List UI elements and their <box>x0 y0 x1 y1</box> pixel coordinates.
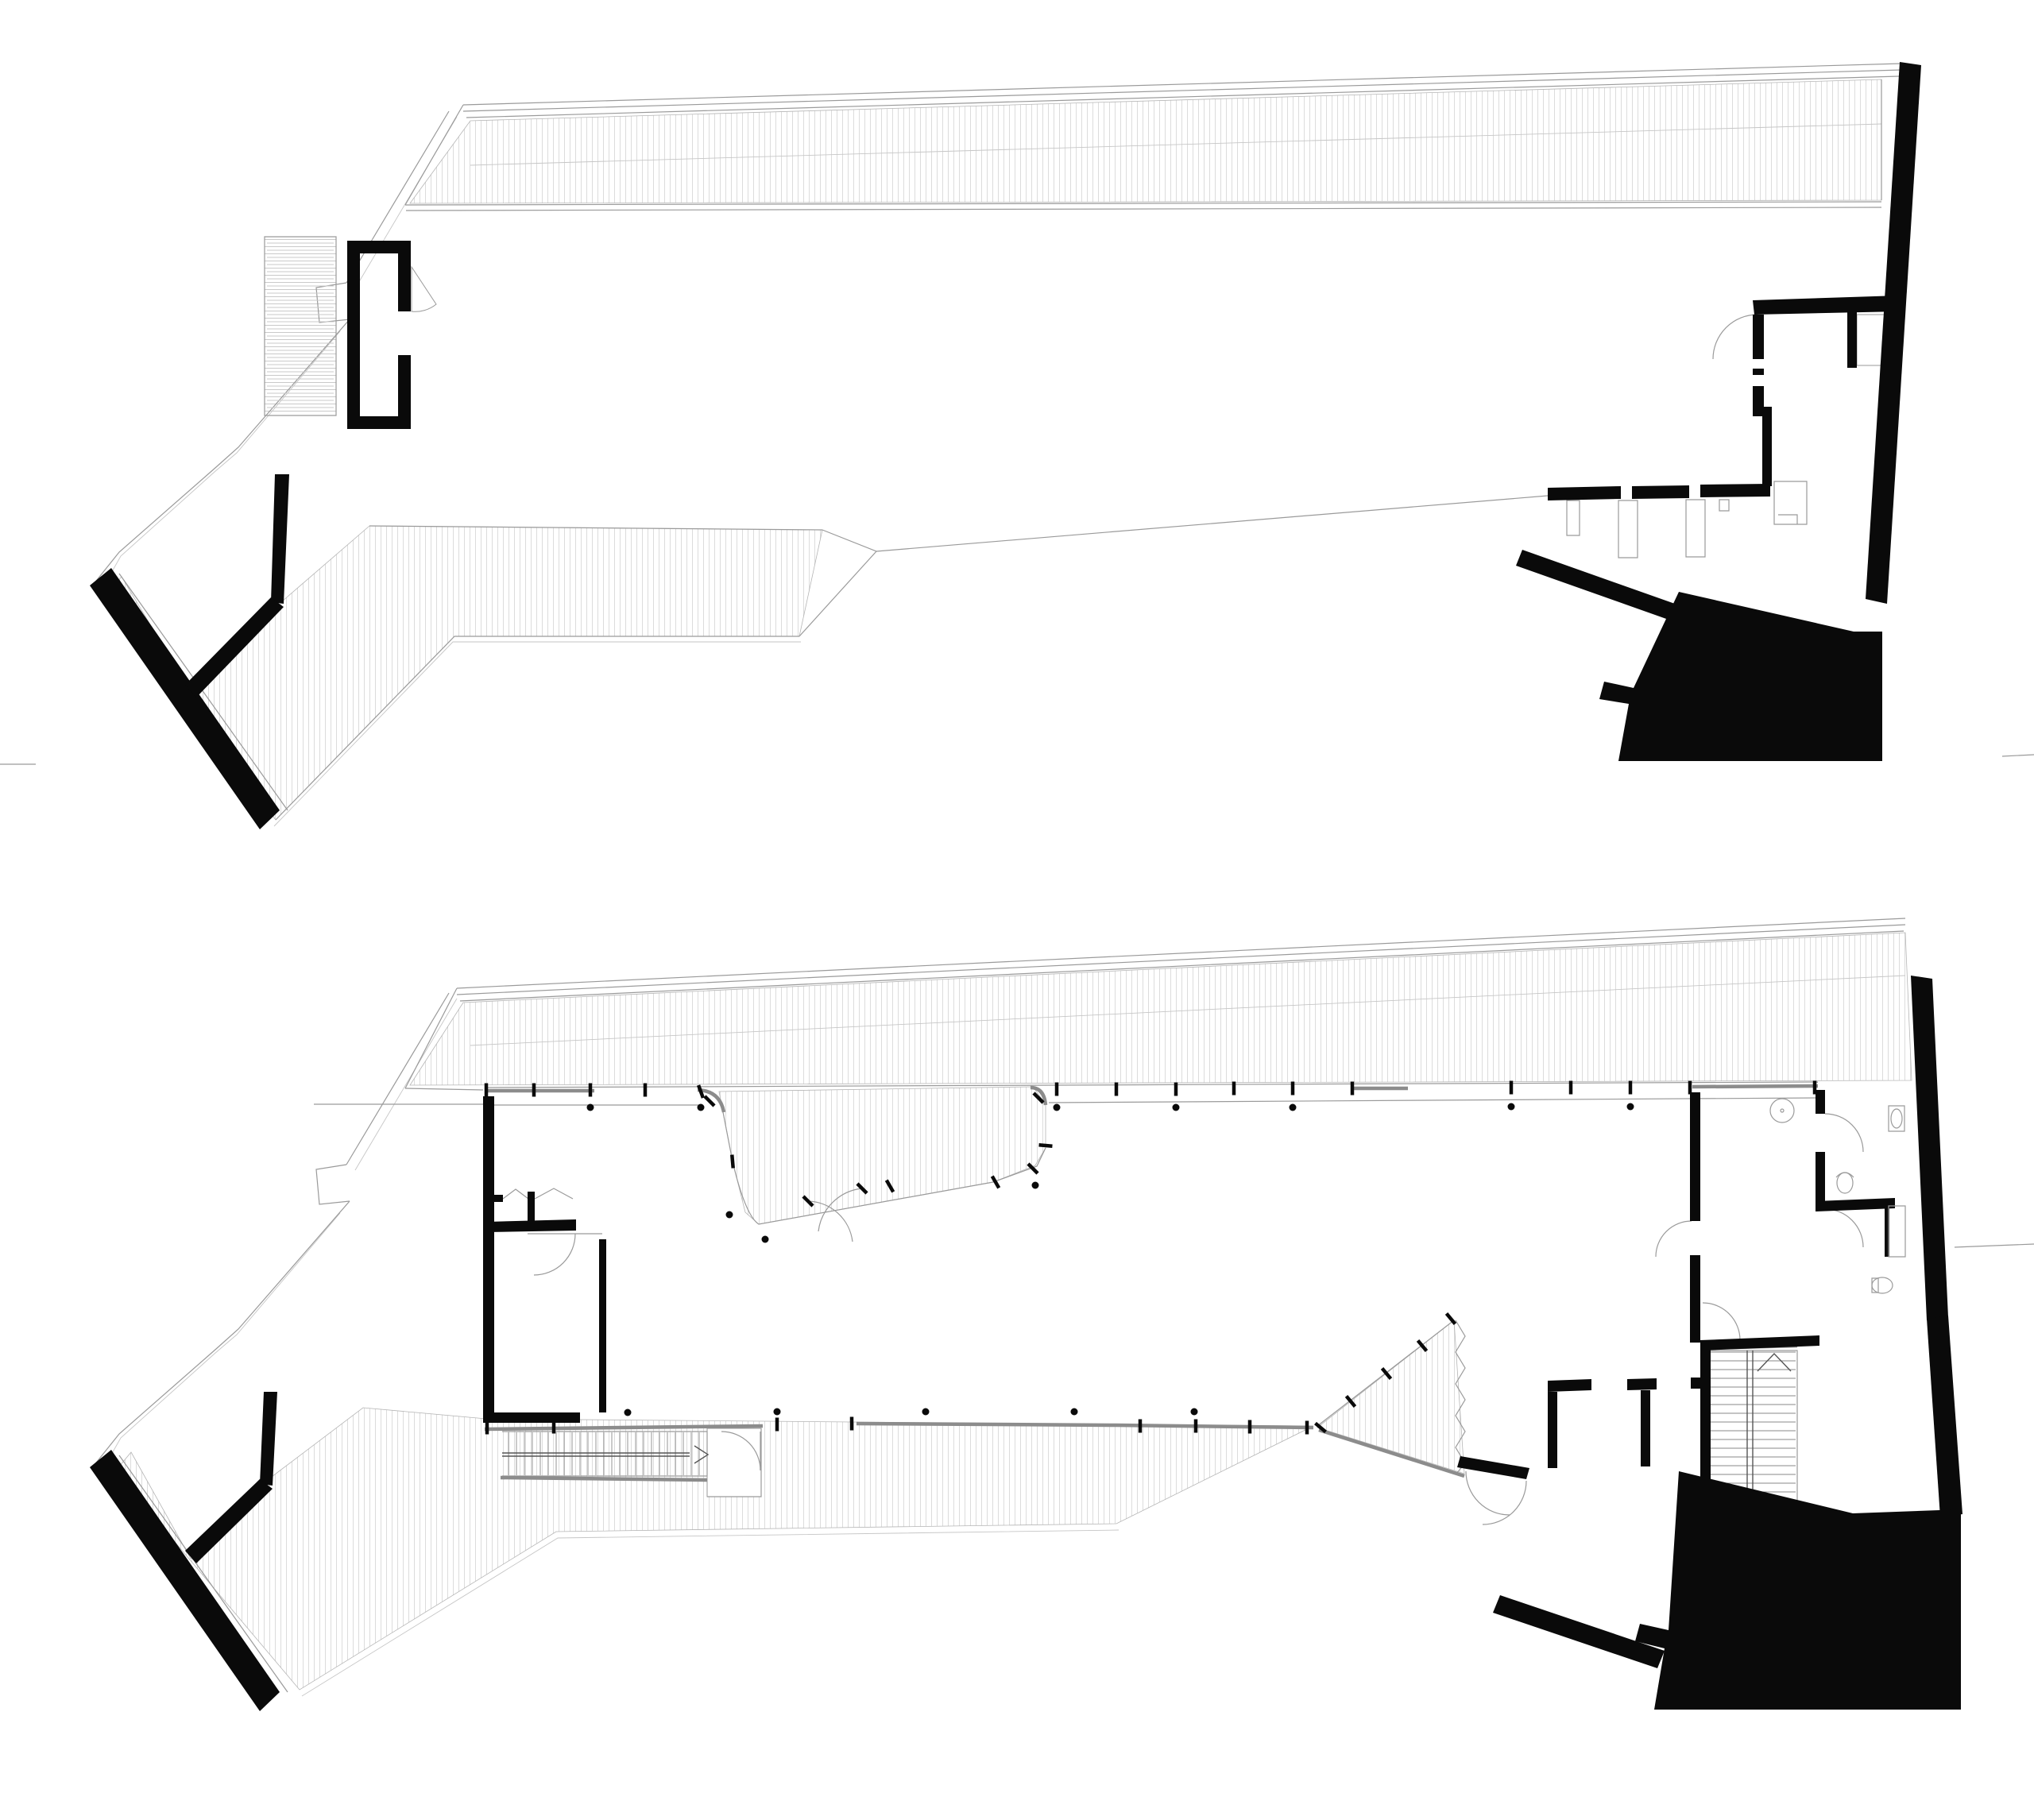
mullion-tick <box>850 1417 854 1431</box>
mullion-tick <box>775 1418 779 1432</box>
stair-rail <box>1758 1354 1791 1371</box>
plans-drawing <box>0 0 2034 1820</box>
wall-poche <box>1753 369 1764 375</box>
mullion-tick <box>1291 1082 1295 1095</box>
fixture <box>1837 1173 1853 1193</box>
thin-line <box>1703 1303 1740 1340</box>
mullion-tick <box>532 1084 536 1097</box>
hatched-area <box>265 237 336 415</box>
column-dot <box>1191 1408 1198 1416</box>
wall-poche <box>1548 1379 1591 1392</box>
thin-line <box>534 1234 575 1275</box>
wall-poche <box>1911 976 1948 1320</box>
wall-poche <box>494 1412 580 1423</box>
wall-poche <box>1753 407 1772 486</box>
mullion-tick <box>1688 1081 1692 1095</box>
wall-poche <box>1641 1390 1650 1466</box>
mullion-tick <box>1194 1420 1198 1433</box>
fixture <box>1872 1277 1893 1293</box>
thin-line <box>1719 500 1729 511</box>
wall-poche <box>1816 1198 1895 1211</box>
thin-line <box>1466 1471 1510 1515</box>
wall-poche <box>1690 1092 1700 1221</box>
thin-line <box>94 1201 350 1466</box>
fixture <box>1770 1099 1794 1123</box>
thin-line <box>876 496 1548 551</box>
mullion-tick <box>589 1084 593 1097</box>
wall-poche <box>398 253 411 311</box>
mullion-tick <box>485 1084 489 1097</box>
mullion-tick <box>1115 1083 1119 1096</box>
column-dot <box>774 1408 781 1416</box>
plan-sheet <box>0 0 2034 1820</box>
mullion-tick <box>1248 1420 1252 1434</box>
fixture <box>1891 1109 1902 1128</box>
thin-line <box>405 1088 483 1090</box>
wall-poche <box>1635 1471 1961 1710</box>
column-dot <box>1508 1103 1515 1111</box>
hatched-area <box>410 933 1912 1085</box>
wall-poche <box>1753 296 1901 315</box>
thin-line <box>1483 1481 1526 1524</box>
wall-poche <box>1690 1255 1700 1343</box>
mullion-tick <box>1510 1081 1514 1095</box>
thin-line <box>1049 1098 1816 1103</box>
column-dot <box>1290 1104 1297 1111</box>
mullion-tick <box>1055 1083 1059 1096</box>
column-dot <box>1071 1408 1078 1416</box>
mullion-tick <box>1305 1421 1309 1435</box>
wall-poche <box>1632 485 1689 499</box>
wall-poche <box>1816 1090 1825 1114</box>
mullion-tick <box>1174 1083 1178 1096</box>
glazing-line <box>501 1478 707 1480</box>
column-dot <box>762 1236 769 1243</box>
wall-poche <box>1816 1152 1825 1207</box>
wall-poche <box>1753 315 1764 359</box>
wall-poche <box>1599 592 1882 761</box>
thin-line <box>503 1189 528 1199</box>
white-inset <box>707 1428 761 1497</box>
wall-poche <box>260 1392 277 1486</box>
thin-line <box>2002 755 2034 756</box>
column-dot <box>922 1408 930 1416</box>
mullion-tick <box>644 1084 648 1097</box>
mullion-tick <box>1139 1420 1143 1433</box>
thin-line <box>1656 1221 1692 1257</box>
thin-line <box>1825 1209 1863 1247</box>
first-floor-plan <box>90 918 2034 1711</box>
wall-poche <box>1847 311 1857 368</box>
fixture <box>1872 1278 1878 1293</box>
column-dot <box>1173 1104 1180 1111</box>
wall-poche <box>1457 1456 1529 1479</box>
column-dot <box>698 1104 705 1111</box>
thin-line <box>316 1165 350 1204</box>
column-dot <box>625 1409 632 1416</box>
mullion-tick <box>552 1420 556 1434</box>
thin-line <box>1618 500 1638 558</box>
wall-poche <box>398 355 411 416</box>
column-dot <box>1054 1104 1061 1111</box>
column-dot <box>726 1211 733 1219</box>
wall-poche <box>1700 484 1770 497</box>
mullion-tick <box>1813 1081 1817 1095</box>
wall-poche <box>271 474 289 604</box>
white-inset <box>412 267 436 311</box>
thin-line <box>1778 515 1797 524</box>
wall-poche <box>1627 1378 1657 1390</box>
thin-line <box>535 1188 573 1199</box>
mullion-tick <box>1351 1082 1355 1095</box>
light-line <box>101 1213 340 1473</box>
wall-poche <box>487 1219 576 1232</box>
thin-line <box>406 207 1881 211</box>
thin-line <box>1774 481 1807 524</box>
wall-poche <box>599 1239 606 1412</box>
thin-line <box>1825 1114 1863 1152</box>
wall-poche <box>487 1195 503 1202</box>
hatched-area <box>1317 1320 1464 1474</box>
wall-poche <box>483 1096 494 1423</box>
glazing-line <box>1692 1086 1818 1087</box>
roof-plan <box>0 62 2034 829</box>
column-dot <box>587 1104 594 1111</box>
column-dot <box>1627 1103 1634 1111</box>
fixture <box>1889 1206 1905 1257</box>
mullion-tick <box>485 1421 489 1435</box>
column-dot <box>1032 1182 1039 1189</box>
hatched-area <box>719 1087 1046 1224</box>
mullion-tick <box>1569 1081 1573 1095</box>
wall-poche <box>1691 1378 1700 1389</box>
wall-poche <box>1516 550 1675 620</box>
wall-poche <box>1548 1392 1557 1468</box>
wall-poche <box>1927 1316 1962 1517</box>
thin-line <box>1686 500 1705 557</box>
mullion-tick <box>1629 1081 1633 1095</box>
thin-line <box>1713 315 1758 359</box>
fixture <box>1781 1109 1784 1112</box>
mullion-tick <box>1232 1082 1236 1095</box>
thin-line <box>1567 500 1580 535</box>
wall-poche <box>1548 486 1621 500</box>
thin-line <box>1955 1244 2034 1247</box>
